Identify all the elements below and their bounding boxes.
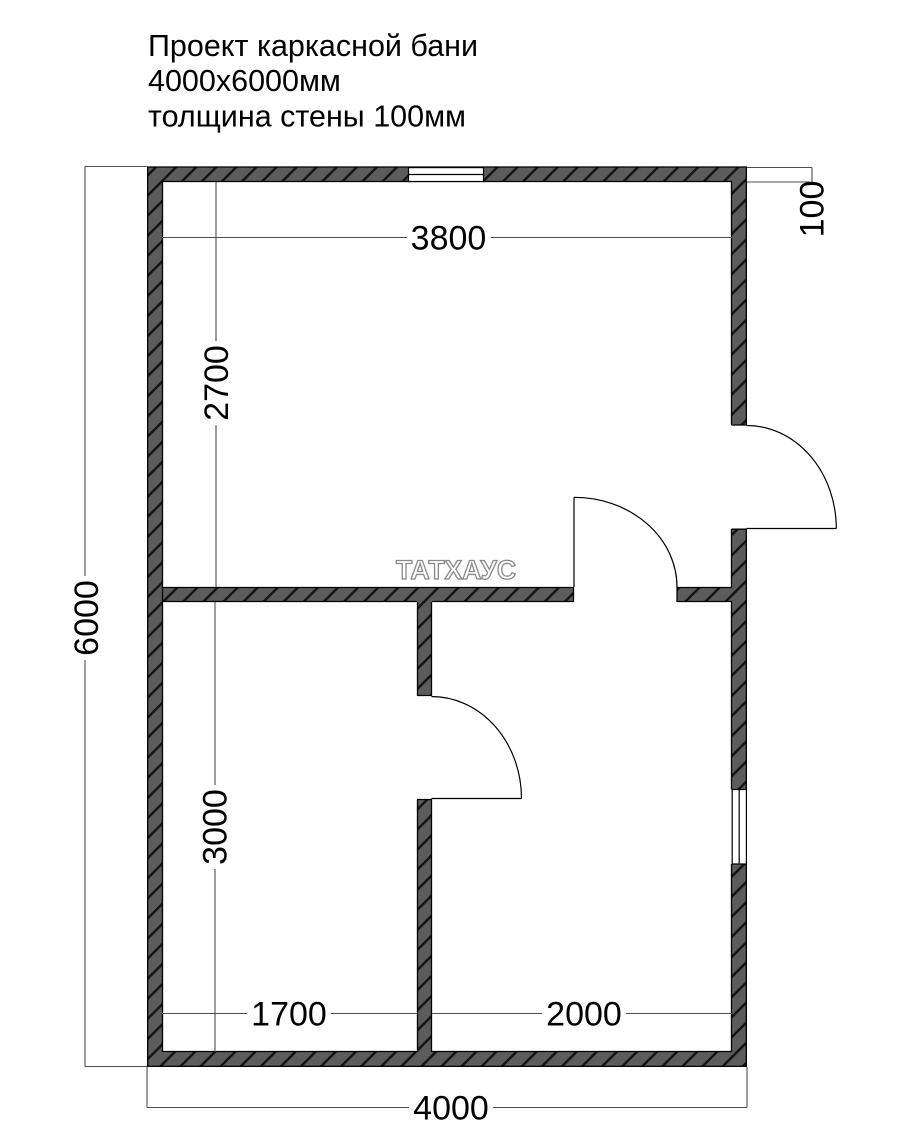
svg-text:4000: 4000 [413, 1090, 489, 1128]
svg-text:1700: 1700 [251, 996, 327, 1034]
svg-text:2000: 2000 [546, 996, 622, 1034]
svg-text:100: 100 [794, 181, 832, 238]
svg-text:2700: 2700 [198, 345, 236, 421]
svg-text:3800: 3800 [411, 220, 487, 258]
svg-text:Проект каркасной бани: Проект каркасной бани [148, 29, 478, 63]
svg-text:6000: 6000 [68, 580, 106, 656]
svg-text:3000: 3000 [197, 789, 235, 865]
svg-text:ТАТХАУС: ТАТХАУС [396, 555, 516, 585]
svg-text:толщина стены 100мм: толщина стены 100мм [148, 100, 466, 134]
svg-text:4000х6000мм: 4000х6000мм [148, 64, 341, 98]
